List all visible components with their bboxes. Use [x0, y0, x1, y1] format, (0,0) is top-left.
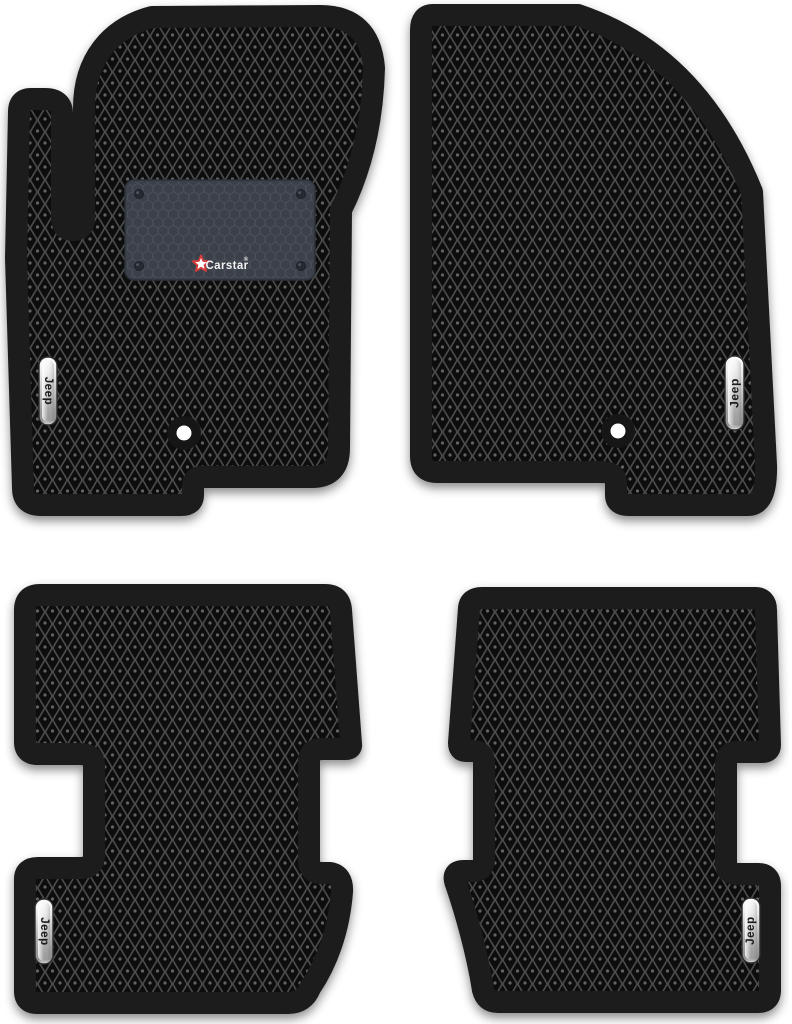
mat-front-left: Carstar ® Jeep [16, 16, 374, 505]
mat-front-right: Jeep [421, 15, 766, 505]
brand-reg-mark: ® [244, 256, 249, 263]
jeep-badge-rear-right: Jeep [742, 898, 760, 963]
product-image: Carstar ® Jeep Jeep [0, 0, 792, 1024]
jeep-badge-text: Jeep [728, 378, 742, 408]
jeep-badge-rear-left: Jeep [35, 899, 53, 964]
mat-rear-left: Jeep [25, 595, 351, 1003]
jeep-badge-front-left: Jeep [39, 357, 57, 425]
jeep-badge-text: Jeep [42, 377, 54, 406]
jeep-badge-text: Jeep [38, 917, 50, 946]
mat-rear-right-body [455, 598, 770, 1002]
floor-mats-illustration: Carstar ® Jeep Jeep [0, 0, 792, 1024]
mat-front-right-body [421, 15, 766, 505]
fastener-front-left [167, 416, 201, 450]
brand-text: Carstar [205, 260, 248, 272]
jeep-badge-text: Jeep [745, 916, 757, 945]
fastener-front-right [601, 414, 635, 448]
mat-rear-right: Jeep [455, 598, 770, 1002]
brand-patch: Carstar ® [125, 180, 315, 280]
mat-rear-left-body [25, 595, 351, 1003]
jeep-badge-front-right: Jeep [725, 356, 744, 430]
